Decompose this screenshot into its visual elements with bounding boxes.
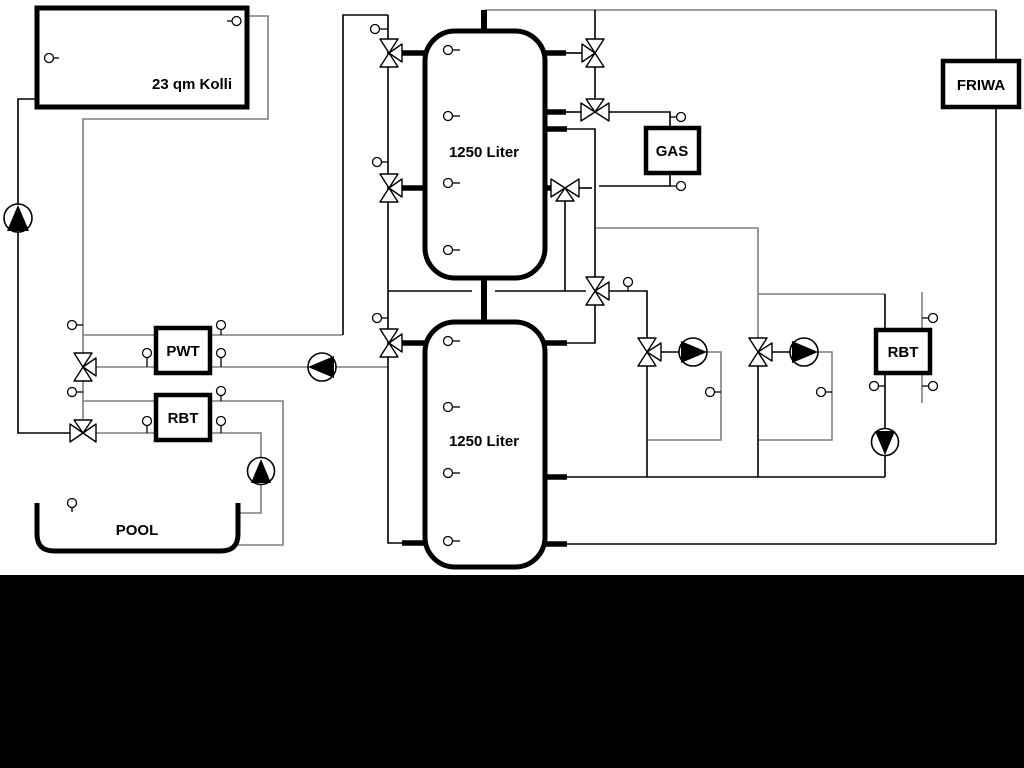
- sensor-icon: [143, 349, 152, 368]
- sensor-icon: [68, 499, 77, 513]
- hydraulic-schematic-page: 23 qm Kolli 1250 Liter 1250 Liter PWT RB…: [0, 0, 1024, 768]
- friwa-label: FRIWA: [957, 77, 1005, 94]
- rbt-left-label: RBT: [168, 410, 199, 427]
- sensor-icon: [217, 349, 226, 368]
- solar-return-pipe: [18, 99, 70, 433]
- gas-top-pipe: [609, 112, 670, 128]
- three-way-valve-icon: [551, 179, 579, 201]
- buffer-tank-bottom-label: 1250 Liter: [449, 433, 519, 450]
- hydraulic-schematic: 23 qm Kolli 1250 Liter 1250 Liter PWT RB…: [0, 0, 1024, 768]
- sensor-icon: [670, 113, 686, 122]
- tank-left-main-pipe: [388, 15, 402, 543]
- three-way-valve-icon: [638, 338, 661, 366]
- sensor-icon: [922, 382, 938, 391]
- pool-pump-pipe: [238, 485, 261, 513]
- pwt-label: PWT: [166, 343, 199, 360]
- three-way-valve-icon: [581, 99, 609, 121]
- sensor-icon: [706, 388, 722, 397]
- rbt-bottom-pipe-right: [210, 433, 261, 458]
- pump-icon: [679, 338, 707, 366]
- circuit2-supply-pipe: [595, 228, 758, 338]
- pump-icon: [308, 353, 336, 381]
- pump-icon: [248, 458, 275, 485]
- sensor-icon: [217, 387, 226, 402]
- sensor-icon: [373, 158, 389, 167]
- sensor-icon: [68, 321, 84, 330]
- three-way-valve-icon: [582, 39, 604, 67]
- three-way-valve-icon: [70, 420, 96, 442]
- sensor-icon: [624, 278, 633, 292]
- equipment-boxes: 23 qm Kolli 1250 Liter 1250 Liter PWT RB…: [37, 8, 1019, 567]
- sensor-icon: [217, 321, 226, 336]
- footer-band: [0, 575, 1024, 768]
- three-way-valve-icon: [586, 277, 609, 305]
- three-way-valve-icon: [74, 353, 96, 381]
- sensor-icon: [68, 388, 84, 397]
- pump-icon: [872, 429, 899, 456]
- sensor-icon: [217, 417, 226, 434]
- solar-collector-label: 23 qm Kolli: [152, 76, 232, 93]
- gas-label: GAS: [656, 143, 689, 160]
- three-way-valve-icon: [380, 329, 402, 357]
- three-way-valve-icon: [380, 39, 402, 67]
- sensor-icon: [373, 314, 389, 323]
- tank-right-down-pipe: [567, 129, 595, 277]
- three-way-valve-icon: [749, 338, 772, 366]
- valve7-to-tank-pipe: [567, 305, 595, 343]
- circuit1-supply-pipe: [609, 291, 647, 338]
- sensor-icon: [143, 417, 152, 434]
- sensor-icon: [817, 388, 833, 397]
- pump-icon: [790, 338, 818, 366]
- sensor-icon: [670, 182, 686, 191]
- buffer-tank-top-label: 1250 Liter: [449, 144, 519, 161]
- sensor-icon: [922, 314, 938, 323]
- sensor-icon: [371, 25, 389, 34]
- rbt-right-label: RBT: [888, 344, 919, 361]
- three-way-valve-icon: [380, 174, 402, 202]
- pool-label: POOL: [116, 522, 159, 539]
- sensor-icon: [870, 382, 886, 391]
- pump-icon: [4, 204, 32, 232]
